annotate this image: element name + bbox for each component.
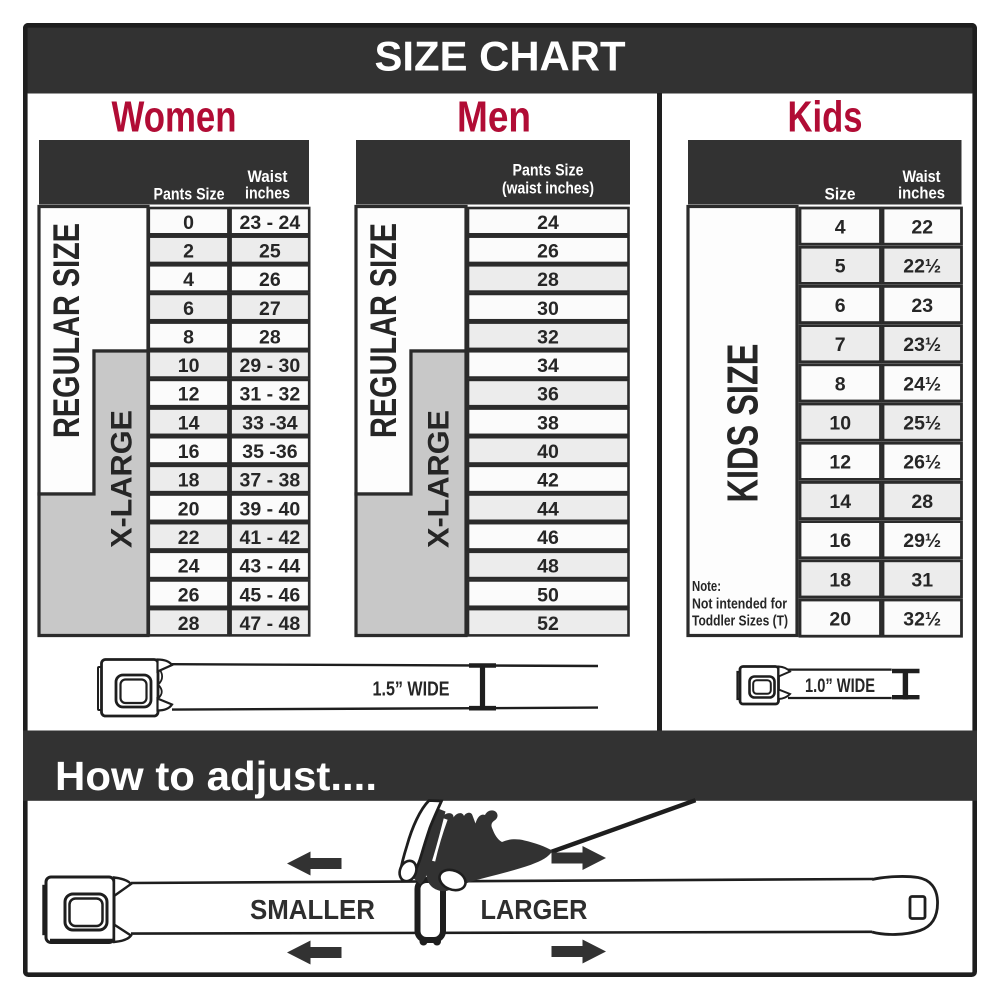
svg-text:8: 8 (835, 373, 846, 395)
svg-text:22: 22 (178, 527, 200, 549)
svg-text:39 - 40: 39 - 40 (240, 498, 301, 520)
svg-text:X-LARGE: X-LARGE (106, 410, 139, 548)
svg-text:6: 6 (835, 295, 846, 317)
svg-text:Size: Size (825, 185, 856, 204)
svg-text:Not intended for: Not intended for (692, 597, 787, 613)
svg-text:27: 27 (259, 298, 281, 320)
svg-text:47 - 48: 47 - 48 (240, 613, 301, 635)
svg-text:inches: inches (245, 184, 290, 203)
svg-text:22: 22 (911, 217, 933, 239)
svg-text:20: 20 (178, 498, 200, 520)
svg-text:2: 2 (183, 240, 194, 262)
svg-text:KIDS SIZE: KIDS SIZE (719, 344, 768, 503)
svg-text:36: 36 (537, 384, 559, 406)
svg-text:4: 4 (183, 269, 194, 291)
svg-text:24: 24 (178, 556, 200, 578)
svg-text:43 - 44: 43 - 44 (240, 556, 301, 578)
svg-text:32: 32 (537, 326, 559, 348)
svg-text:28: 28 (911, 491, 933, 513)
svg-text:1.5” WIDE: 1.5” WIDE (373, 679, 450, 701)
svg-text:30: 30 (537, 298, 559, 320)
svg-text:23: 23 (911, 295, 933, 317)
svg-text:25½: 25½ (903, 413, 941, 435)
svg-text:23 - 24: 23 - 24 (240, 212, 301, 234)
svg-text:50: 50 (537, 584, 559, 606)
svg-text:40: 40 (537, 441, 559, 463)
svg-text:16: 16 (829, 530, 851, 552)
svg-text:Toddler Sizes (T): Toddler Sizes (T) (692, 614, 788, 630)
svg-text:0: 0 (183, 212, 194, 234)
svg-text:Pants Size: Pants Size (513, 161, 584, 180)
svg-text:29 - 30: 29 - 30 (240, 355, 301, 377)
svg-text:12: 12 (829, 452, 851, 474)
svg-text:Kids: Kids (788, 94, 863, 142)
svg-text:26: 26 (259, 269, 281, 291)
svg-text:31 - 32: 31 - 32 (240, 384, 301, 406)
svg-text:LARGER: LARGER (481, 894, 588, 925)
svg-text:14: 14 (829, 491, 851, 513)
svg-text:33 -34: 33 -34 (242, 412, 297, 434)
svg-text:29½: 29½ (903, 530, 941, 552)
svg-text:32½: 32½ (903, 609, 941, 631)
svg-text:45 - 46: 45 - 46 (240, 584, 301, 606)
svg-text:46: 46 (537, 527, 559, 549)
svg-text:25: 25 (259, 240, 281, 262)
svg-text:18: 18 (178, 470, 200, 492)
svg-text:10: 10 (829, 413, 851, 435)
svg-text:24: 24 (537, 212, 559, 234)
svg-text:SIZE CHART: SIZE CHART (375, 33, 626, 80)
svg-text:(waist inches): (waist inches) (502, 179, 594, 198)
svg-text:42: 42 (537, 470, 559, 492)
svg-text:41 - 42: 41 - 42 (240, 527, 301, 549)
svg-text:18: 18 (829, 569, 851, 591)
svg-text:8: 8 (183, 326, 194, 348)
svg-text:26: 26 (537, 240, 559, 262)
svg-text:44: 44 (537, 498, 559, 520)
svg-text:12: 12 (178, 384, 200, 406)
svg-text:Pants Size: Pants Size (154, 185, 225, 204)
svg-text:X-LARGE: X-LARGE (423, 410, 456, 548)
svg-text:28: 28 (178, 613, 200, 635)
svg-text:10: 10 (178, 355, 200, 377)
svg-text:26½: 26½ (903, 452, 941, 474)
svg-text:37 - 38: 37 - 38 (240, 470, 301, 492)
svg-text:14: 14 (178, 412, 200, 434)
svg-text:28: 28 (259, 326, 281, 348)
svg-text:28: 28 (537, 269, 559, 291)
svg-text:38: 38 (537, 412, 559, 434)
svg-text:24½: 24½ (903, 373, 941, 395)
svg-text:23½: 23½ (903, 334, 941, 356)
svg-text:How to adjust....: How to adjust.... (55, 753, 377, 799)
svg-text:7: 7 (835, 334, 846, 356)
svg-text:20: 20 (829, 609, 851, 631)
svg-text:35 -36: 35 -36 (242, 441, 297, 463)
svg-text:5: 5 (835, 256, 846, 278)
svg-text:6: 6 (183, 298, 194, 320)
svg-text:22½: 22½ (903, 256, 941, 278)
svg-text:16: 16 (178, 441, 200, 463)
svg-text:Men: Men (457, 94, 531, 142)
svg-text:SMALLER: SMALLER (250, 894, 375, 925)
svg-text:inches: inches (898, 184, 945, 203)
svg-text:34: 34 (537, 355, 559, 377)
svg-text:1.0” WIDE: 1.0” WIDE (805, 676, 875, 697)
svg-text:REGULAR SIZE: REGULAR SIZE (363, 223, 404, 438)
svg-text:52: 52 (537, 613, 559, 635)
svg-text:31: 31 (911, 569, 933, 591)
svg-text:48: 48 (537, 556, 559, 578)
svg-text:Women: Women (112, 94, 237, 142)
svg-text:4: 4 (835, 217, 846, 239)
svg-text:REGULAR SIZE: REGULAR SIZE (46, 223, 87, 438)
svg-text:Note:: Note: (692, 579, 721, 595)
svg-text:26: 26 (178, 584, 200, 606)
